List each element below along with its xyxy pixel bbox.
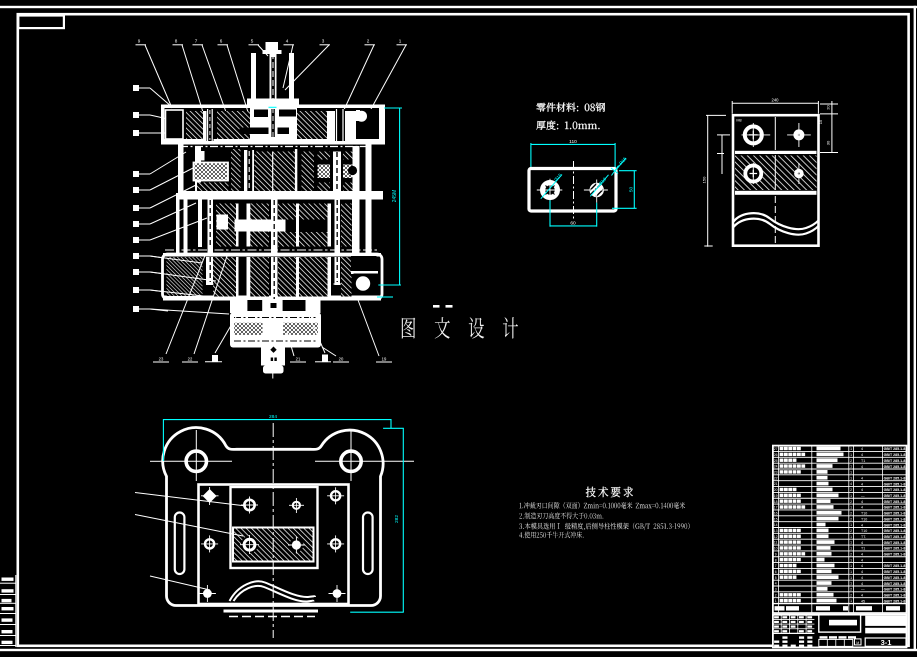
svg-text:21: 21 [774,482,778,486]
svg-text:4: 4 [861,453,863,457]
svg-text:3: 3 [322,39,325,44]
svg-text:GB/T 285.1-8: GB/T 285.1-8 [884,570,906,574]
svg-text:4: 4 [861,523,863,527]
svg-text:1: 1 [850,558,852,562]
svg-text:240: 240 [772,98,780,103]
svg-text:15: 15 [818,119,823,124]
svg-text:—: — [861,494,865,498]
svg-text:T10: T10 [861,512,867,516]
svg-text:19: 19 [774,494,778,498]
svg-text:1: 1 [850,535,852,539]
svg-text:23: 23 [159,357,164,362]
svg-text:2: 2 [850,488,852,492]
svg-text:22: 22 [774,476,778,480]
svg-text:GB/T 285.1-8: GB/T 285.1-8 [884,447,906,451]
svg-text:GB/T 285.1-8: GB/T 285.1-8 [884,564,906,568]
svg-text:1: 1 [775,599,777,603]
svg-text:GB/T 285.1-8: GB/T 285.1-8 [884,512,906,516]
svg-text:4: 4 [286,39,289,44]
svg-text:4: 4 [861,488,863,492]
svg-text:7: 7 [195,39,198,44]
svg-text:9: 9 [138,39,141,44]
svg-text:17: 17 [774,506,778,510]
svg-text:4: 4 [861,482,863,486]
svg-text:7: 7 [775,564,777,568]
svg-text:GB/T 285.1-8: GB/T 285.1-8 [884,453,906,457]
svg-text:T10: T10 [861,529,867,533]
svg-text:1: 1 [850,494,852,498]
svg-text:8: 8 [775,558,777,562]
svg-text:2: 2 [850,459,852,463]
svg-text:4: 4 [861,593,863,597]
svg-text:20: 20 [774,488,778,492]
svg-text:110: 110 [569,139,577,145]
svg-text:GB/T 285.1-8: GB/T 285.1-8 [884,576,906,580]
svg-text:2: 2 [850,511,852,515]
svg-text:4: 4 [861,553,863,557]
svg-text:TT.: TT. [861,535,866,539]
svg-text:2: 2 [850,552,852,556]
svg-text:2: 2 [850,588,852,592]
svg-text:2: 2 [850,593,852,597]
svg-text:14: 14 [774,523,778,527]
svg-text:4: 4 [861,558,863,562]
svg-text:11: 11 [774,541,778,545]
svg-text:150: 150 [702,176,707,183]
svg-text:GB/T 285.1-8: GB/T 285.1-8 [884,482,906,486]
svg-text:2: 2 [367,39,370,44]
svg-text:GB/T 285.1-8: GB/T 285.1-8 [884,541,906,545]
svg-text:13: 13 [774,529,778,533]
svg-text:4: 4 [861,500,863,504]
svg-text:GB/T 285.1-8: GB/T 285.1-8 [884,599,906,603]
svg-text:30: 30 [826,140,831,145]
svg-text:4: 4 [861,465,863,469]
svg-text:8: 8 [175,39,178,44]
svg-text:4: 4 [861,541,863,545]
svg-text:1: 1 [850,447,852,451]
svg-text:5: 5 [251,39,254,44]
svg-text:23: 23 [774,471,778,475]
svg-text:GB/T 285.1-8: GB/T 285.1-8 [884,588,906,592]
svg-text:2: 2 [850,517,852,521]
svg-text:60: 60 [570,221,576,227]
svg-text:25: 25 [774,459,778,463]
svg-text:1: 1 [850,564,852,568]
svg-text:282: 282 [394,515,400,523]
svg-text:6: 6 [220,39,223,44]
svg-text:1: 1 [850,506,852,510]
svg-text:GB/T 285.1-8: GB/T 285.1-8 [884,506,906,510]
svg-text:19: 19 [382,357,387,362]
svg-text:GB/T 285.1-8: GB/T 285.1-8 [884,465,906,469]
svg-text:16: 16 [774,511,778,515]
svg-text:4: 4 [861,582,863,586]
svg-text:1: 1 [399,39,402,44]
svg-text:GB/T 285.1-8: GB/T 285.1-8 [884,553,906,557]
svg-text:2: 2 [775,593,777,597]
svg-text:GB/T 285.1-8: GB/T 285.1-8 [884,476,906,480]
svg-text:—: — [861,588,865,592]
svg-text:2: 2 [850,529,852,533]
svg-text:1: 1 [850,576,852,580]
svg-text:18: 18 [774,500,778,504]
svg-text:21: 21 [296,357,301,362]
svg-text:1: 1 [850,453,852,457]
svg-text:T1: T1 [861,459,865,463]
svg-text:24: 24 [774,465,778,469]
svg-text:2: 2 [850,500,852,504]
svg-text:GB/T 285.1-8: GB/T 285.1-8 [884,535,906,539]
svg-text:GB/T 285.1-8: GB/T 285.1-8 [884,488,906,492]
svg-text:GB/T 285.1-8: GB/T 285.1-8 [884,529,906,533]
svg-text:4: 4 [861,570,863,574]
svg-text:4: 4 [861,576,863,580]
svg-text:9: 9 [775,552,777,556]
svg-text:GB/T 285.1-8: GB/T 285.1-8 [884,582,906,586]
svg-text:1: 1 [850,547,852,551]
svg-text:1: 1 [850,599,852,603]
svg-text:4: 4 [861,564,863,568]
svg-text:1: 1 [850,523,852,527]
svg-text:50: 50 [629,187,635,193]
svg-text:284: 284 [269,414,277,420]
svg-text:3-1: 3-1 [881,638,892,647]
svg-text:1: 1 [850,471,852,475]
svg-text:4: 4 [850,482,852,486]
svg-text:GB/T 285.1-8: GB/T 285.1-8 [884,517,906,521]
svg-text:GB/T 285.1-8: GB/T 285.1-8 [884,459,906,463]
svg-text:245M: 245M [392,190,398,203]
svg-text:20: 20 [339,357,344,362]
svg-text:GB/T 285.1-8: GB/T 285.1-8 [884,593,906,597]
svg-text:M8: M8 [736,119,741,123]
svg-text:1: 1 [850,582,852,586]
svg-text:45: 45 [861,599,865,603]
svg-text:GB/T 285.1-8: GB/T 285.1-8 [884,494,906,498]
svg-text:6: 6 [775,570,777,574]
svg-text:4: 4 [861,506,863,510]
svg-text:15: 15 [774,517,778,521]
svg-text:1: 1 [850,570,852,574]
svg-text:T10: T10 [861,517,867,521]
svg-text:20: 20 [826,105,831,110]
svg-text:1: 1 [850,541,852,545]
svg-text:1: 1 [850,465,852,469]
svg-text:5: 5 [775,576,777,580]
svg-text:22: 22 [188,357,193,362]
svg-text:4: 4 [775,582,777,586]
svg-text:26: 26 [774,453,778,457]
svg-text:4: 4 [861,447,863,451]
svg-text:GB/T 285.1-8: GB/T 285.1-8 [884,500,906,504]
svg-text:10: 10 [774,547,778,551]
svg-text:3: 3 [775,588,777,592]
svg-text:1: 1 [850,476,852,480]
svg-text:GB/T 285.1-8: GB/T 285.1-8 [884,523,906,527]
svg-text:M: M [856,641,859,645]
svg-text:GB/T 285.1-8: GB/T 285.1-8 [884,547,906,551]
svg-text:4: 4 [861,476,863,480]
svg-text:12: 12 [774,535,778,539]
svg-text:27: 27 [774,447,778,451]
svg-text:T1: T1 [861,547,865,551]
